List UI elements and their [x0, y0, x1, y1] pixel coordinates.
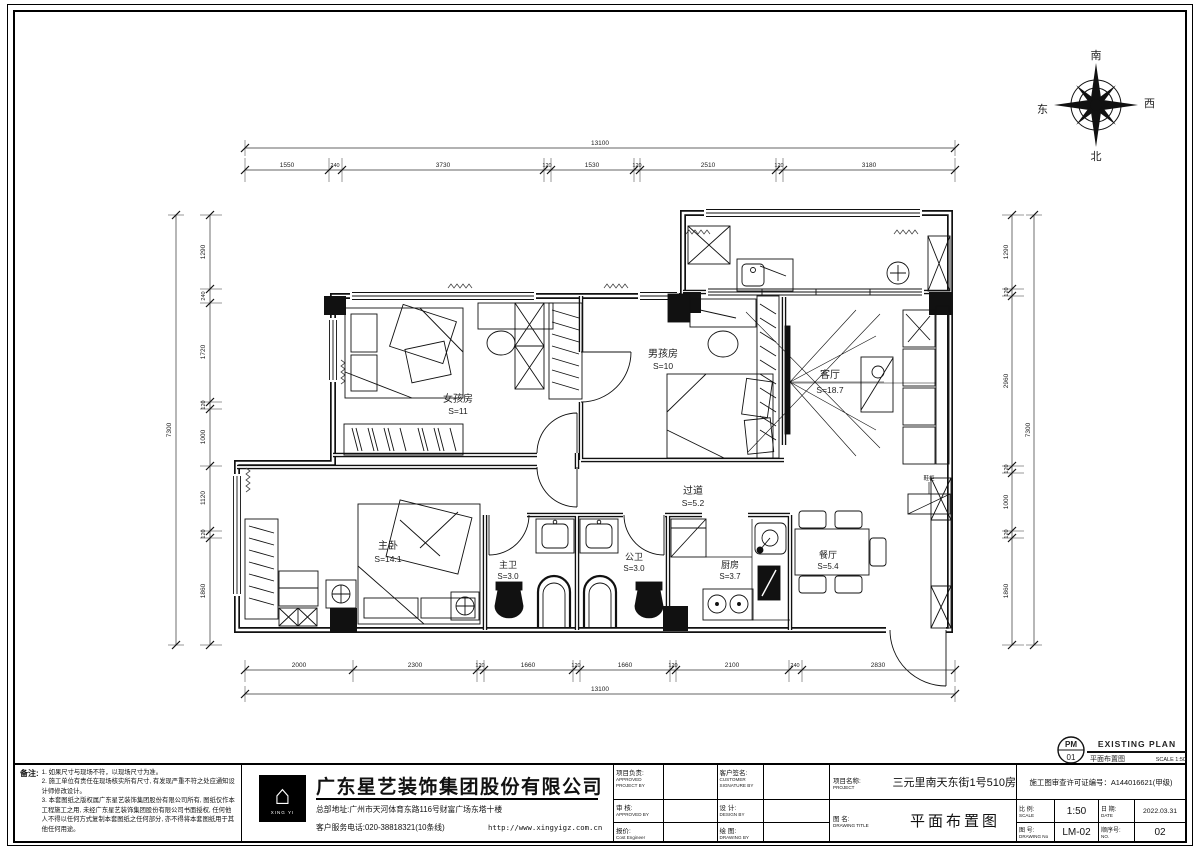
room-label: 主卫 [499, 559, 517, 570]
plan-stamp: PM 01 EXISTING PLAN 平面布置图 SCALE 1:50 [1058, 737, 1186, 763]
svg-text:2830: 2830 [871, 662, 886, 669]
title-block: 备注: 1. 如果尺寸与现场不符，以现场尺寸为准。 2. 施工单位有责任在现场核… [15, 763, 1185, 841]
svg-text:120: 120 [201, 529, 207, 538]
svg-text:3180: 3180 [862, 162, 877, 169]
company-website: http://www.xingyigz.com.cn [488, 823, 602, 832]
dimension-top-text: 13100 1550 240 3730 120 1530 120 2510 12… [280, 140, 877, 169]
interior-walls [237, 292, 950, 630]
dining-furniture [795, 511, 886, 593]
room-label: 过道 [683, 484, 703, 497]
compass-south-label: 南 [1091, 49, 1102, 62]
svg-text:7300: 7300 [1025, 422, 1032, 437]
boys-room-furniture [667, 294, 779, 458]
room-area: S=10 [653, 361, 673, 371]
cell-customer: 客户签名: CUSTOMER SIGNATURE BY [718, 765, 764, 800]
svg-text:120: 120 [1004, 529, 1010, 538]
entry-cabinets [908, 478, 951, 628]
cell-drawing-by: 绘 图: DRAWING BY [718, 823, 764, 841]
signature-field[interactable] [764, 800, 829, 823]
stamp-title-en: EXISTING PLAN [1098, 739, 1176, 749]
room-area: S=3.0 [623, 564, 645, 573]
note-line: 2. 施工单位有责任在现场核实所有尺寸, 有发现严重不符之处应通知设计师修改设计… [42, 777, 237, 796]
cell-design: 设 计: DESIGN BY [718, 800, 764, 823]
company-address: 总部地址:广州市天河体育东路116号财富广场东塔十楼 [316, 804, 502, 815]
dimension-bottom-text: 2000 2300 120 1660 120 1660 120 2100 240… [292, 662, 886, 693]
drawing-no-label: 图 号: DRAWING No [1017, 823, 1055, 841]
svg-text:1290: 1290 [1003, 244, 1010, 259]
master-bedroom-furniture [245, 500, 480, 626]
room-label: 公卫 [625, 552, 643, 562]
seq-no-label: 顺序号: NO. [1099, 823, 1135, 841]
room-area: S=3.0 [497, 572, 519, 581]
svg-text:1530: 1530 [585, 162, 600, 169]
permit-number: 施工图审查许可证编号：A144016621(甲级) [1017, 765, 1185, 800]
project-section: 项目名称: PROJECT 三元里南天东街1号510房 图 名: DRAWING… [830, 765, 1017, 841]
compass-east-label: 东 [1037, 103, 1048, 116]
svg-text:120: 120 [774, 163, 783, 169]
drawing-sheet: 女孩房 S=11 男孩房 S=10 客厅 S=18.7 过道 S=5.2 主卧 … [0, 0, 1200, 849]
company-section: ⌂ XING YI 广东星艺装饰集团股份有限公司 总部地址:广州市天河体育东路1… [242, 765, 614, 841]
logo-text: XING YI [271, 810, 294, 815]
room-area: S=14.1 [374, 554, 401, 564]
date-value: 2022.03.31 [1135, 800, 1185, 822]
drawing-info-section: 施工图审查许可证编号：A144016621(甲级) 比 例: SCALE 1:5… [1017, 765, 1185, 841]
room-label: 女孩房 [443, 392, 473, 405]
floor-plan-canvas: 女孩房 S=11 男孩房 S=10 客厅 S=18.7 过道 S=5.2 主卧 … [0, 0, 1200, 849]
dimension-left [168, 211, 222, 649]
svg-text:7300: 7300 [166, 422, 173, 437]
entrance-opening [886, 626, 946, 634]
svg-text:1860: 1860 [200, 583, 207, 598]
svg-text:2960: 2960 [1003, 373, 1010, 388]
stamp-code: PM [1065, 740, 1077, 749]
project-name-value: 三元里南天东街1号510房 [893, 774, 1016, 790]
dimension-left-text: 1290 240 1720 120 1000 1120 120 1860 730… [166, 244, 207, 598]
signature-grid: 项目负责: APPROVED PROJECT BY 审 核: APPROVED … [614, 765, 830, 841]
house-icon: ⌂ [274, 782, 290, 809]
shoe-cabinet-label: 鞋柜 [923, 474, 935, 482]
room-label: 餐厅 [819, 549, 837, 560]
svg-text:240: 240 [201, 291, 207, 300]
signature-field[interactable] [664, 823, 717, 841]
scale-label: 比 例: SCALE [1017, 800, 1055, 822]
note-line: 1. 如果尺寸与现场不符，以现场尺寸为准。 [42, 768, 237, 777]
drawing-no-value: LM-02 [1055, 823, 1099, 841]
svg-text:120: 120 [1004, 464, 1010, 473]
svg-text:1660: 1660 [521, 662, 536, 669]
svg-text:120: 120 [1004, 287, 1010, 296]
svg-text:2000: 2000 [292, 662, 307, 669]
stamp-number: 01 [1067, 753, 1076, 762]
signature-field[interactable] [664, 800, 717, 823]
svg-text:240: 240 [790, 663, 799, 669]
company-phone: 客户服务电话:020-38818321(10条线) [316, 822, 445, 833]
balcony-items [688, 226, 950, 291]
notes-label: 备注: [20, 768, 39, 839]
room-label: 主卧 [378, 539, 398, 552]
cell-cost: 报价: Cost Engineer [614, 823, 663, 841]
drawing-title-value: 平面布置图 [894, 810, 1016, 831]
svg-text:240: 240 [330, 163, 339, 169]
svg-text:2510: 2510 [701, 162, 716, 169]
cell-project-manager: 项目负责: APPROVED PROJECT BY [614, 765, 663, 800]
date-label: 日 期: DATE [1099, 800, 1135, 822]
svg-text:2100: 2100 [725, 662, 740, 669]
svg-text:120: 120 [571, 663, 580, 669]
cell-audit: 审 核: APPROVED BY [614, 800, 663, 823]
signature-field[interactable] [764, 765, 829, 800]
note-line: 3. 本套图纸之版权属广东星艺装饰集团股份有限公司所有, 图纸仅作本工程施工之用… [42, 796, 237, 834]
svg-text:1000: 1000 [200, 429, 207, 444]
room-area: S=11 [448, 406, 468, 416]
svg-text:1720: 1720 [200, 344, 207, 359]
compass-rose-icon: 南 北 东 西 [1037, 49, 1155, 163]
drawing-title-label: 图 名: DRAWING TITLE [830, 811, 894, 830]
compass-west-label: 西 [1144, 98, 1155, 110]
svg-text:13100: 13100 [591, 140, 609, 147]
svg-text:120: 120 [668, 663, 677, 669]
room-area: S=5.2 [682, 498, 705, 508]
common-bathroom-fixtures [580, 519, 663, 628]
notes-section: 备注: 1. 如果尺寸与现场不符，以现场尺寸为准。 2. 施工单位有责任在现场核… [15, 765, 242, 841]
svg-text:2300: 2300 [408, 662, 423, 669]
svg-text:1290: 1290 [200, 244, 207, 259]
svg-text:1860: 1860 [1003, 583, 1010, 598]
dimension-right [1002, 211, 1042, 649]
project-name-label: 项目名称: PROJECT [830, 773, 893, 792]
room-label: 男孩房 [648, 347, 678, 360]
compass-north-label: 北 [1091, 150, 1102, 163]
company-logo: ⌂ XING YI [259, 775, 306, 822]
svg-text:120: 120 [542, 163, 551, 169]
svg-text:1120: 1120 [200, 491, 207, 505]
room-area: S=3.7 [719, 572, 741, 581]
svg-text:1660: 1660 [618, 662, 633, 669]
svg-text:1000: 1000 [1003, 494, 1010, 509]
dimension-right-text: 1290 120 2960 120 1000 120 1860 7300 [1003, 244, 1032, 598]
room-area: S=18.7 [816, 385, 843, 395]
svg-text:1550: 1550 [280, 162, 295, 169]
svg-text:120: 120 [632, 163, 641, 169]
svg-text:3730: 3730 [436, 162, 451, 169]
svg-text:13100: 13100 [591, 686, 609, 693]
scale-value: 1:50 [1055, 800, 1099, 822]
company-name: 广东星艺装饰集团股份有限公司 [316, 772, 603, 799]
room-label: 厨房 [721, 559, 739, 570]
svg-text:120: 120 [475, 663, 484, 669]
girls-room-furniture [344, 303, 582, 455]
outer-walls [237, 213, 950, 630]
svg-text:120: 120 [201, 400, 207, 409]
room-label: 客厅 [820, 368, 840, 381]
stamp-title-cn: 平面布置图 [1090, 754, 1125, 763]
company-name-underline [316, 798, 598, 800]
dimension-bottom [241, 660, 959, 702]
signature-field[interactable] [764, 823, 829, 841]
seq-no-value: 02 [1135, 823, 1185, 841]
signature-field[interactable] [664, 765, 717, 800]
room-area: S=5.4 [817, 562, 839, 571]
